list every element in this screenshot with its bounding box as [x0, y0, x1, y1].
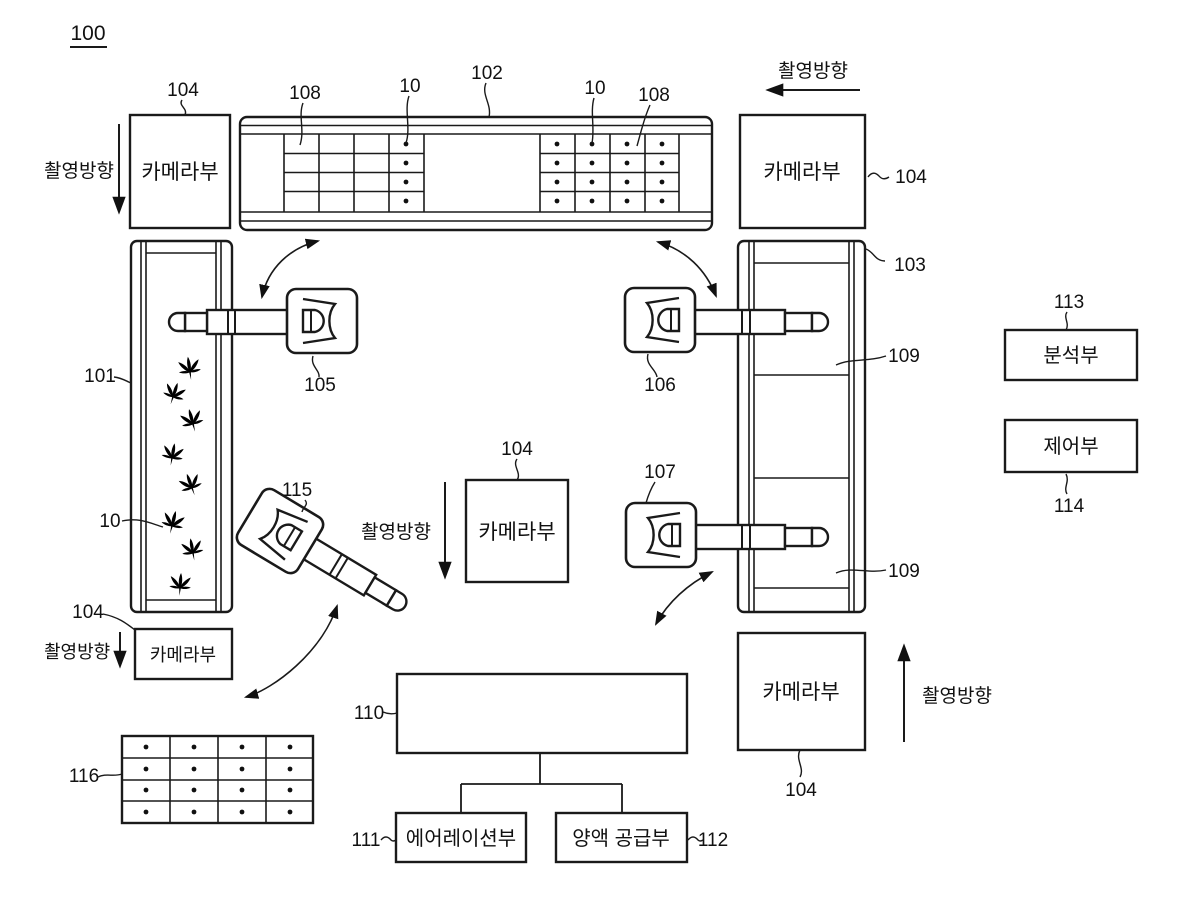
- nutrient-unit-label: 양액 공급부: [572, 827, 670, 850]
- tank-connector-lines: [461, 753, 622, 813]
- ref-115: 115: [282, 480, 312, 501]
- ref-116: 116: [69, 766, 99, 787]
- top-conveyor: 108 10 102 10 108: [240, 63, 712, 230]
- analysis-unit-label: 분석부: [1043, 344, 1098, 367]
- ref-106: 106: [644, 375, 676, 396]
- camera-unit-top-left-label: 카메라부: [141, 161, 218, 184]
- right-conveyor: 103 109 109: [738, 241, 926, 612]
- shoot-direction-center-label: 촬영방향: [361, 521, 431, 543]
- shoot-direction-top-left-label: 촬영방향: [44, 160, 114, 182]
- control-unit-label: 제어부: [1043, 435, 1098, 458]
- figure-number-label: 100: [70, 22, 105, 45]
- shoot-direction-bottom-left: 촬영방향: [44, 632, 120, 666]
- ref-108-left: 108: [289, 83, 321, 104]
- ref-110: 110: [354, 703, 384, 724]
- camera-unit-bottom-left: 카메라부 104: [72, 602, 232, 679]
- camera-unit-bottom-right: 카메라부 104: [738, 633, 865, 801]
- ref-111: 111: [352, 830, 381, 851]
- figure-number: 100: [70, 22, 107, 47]
- ref-104-top-left: 104: [167, 80, 199, 101]
- ref-113: 113: [1054, 292, 1084, 313]
- gripper-claw-icon: [625, 288, 695, 352]
- camera-unit-top-right-label: 카메라부: [763, 161, 840, 184]
- ref-109-bottom: 109: [888, 561, 920, 582]
- ref-107: 107: [644, 462, 676, 483]
- ref-104-center: 104: [501, 439, 533, 460]
- gripper-claw-icon: [287, 289, 357, 353]
- shoot-direction-bottom-right-label: 촬영방향: [922, 685, 992, 707]
- transfer-robot-115: 115: [234, 480, 422, 634]
- ref-104-bottom-right: 104: [785, 780, 817, 801]
- ref-105: 105: [304, 375, 336, 396]
- aeration-unit-box: 에어레이션부 111: [352, 813, 526, 862]
- patent-figure-page: 100 카메라부 104 촬영방향: [0, 0, 1203, 905]
- camera-unit-center: 카메라부 104: [466, 439, 568, 582]
- ref-10-top-right: 10: [584, 78, 605, 99]
- ref-109-top: 109: [888, 346, 920, 367]
- ref-104-top-right: 104: [895, 167, 927, 188]
- patent-figure: 100 카메라부 104 촬영방향: [0, 0, 1203, 905]
- output-tray-grid: 116: [69, 736, 313, 823]
- camera-unit-bottom-left-label: 카메라부: [150, 645, 216, 665]
- camera-unit-top-left: 카메라부 104: [130, 80, 230, 228]
- camera-unit-bottom-right-label: 카메라부: [762, 681, 839, 704]
- left-conveyor: 101 10: [84, 241, 232, 612]
- shoot-direction-bottom-left-label: 촬영방향: [44, 642, 110, 662]
- tank-block: 110 에어레이션부 111 양액 공급부 112: [352, 674, 729, 862]
- gripper-claw-icon: [626, 503, 696, 567]
- ref-102: 102: [471, 63, 503, 84]
- ref-101: 101: [84, 366, 116, 387]
- aeration-unit-label: 에어레이션부: [406, 827, 516, 850]
- analysis-unit-box: 분석부 113: [1005, 292, 1137, 380]
- shoot-direction-bottom-right: 촬영방향: [904, 646, 992, 742]
- ref-114: 114: [1054, 496, 1085, 517]
- ref-10-left: 10: [99, 511, 120, 532]
- nutrient-unit-box: 양액 공급부 112: [556, 813, 728, 862]
- shoot-direction-top-right: 촬영방향: [768, 60, 860, 90]
- ref-104-bottom-left: 104: [72, 602, 104, 623]
- camera-unit-center-label: 카메라부: [478, 521, 555, 544]
- control-unit-box: 제어부 114: [1005, 420, 1137, 517]
- swap-arrow-bottom-right: [656, 572, 712, 624]
- shoot-direction-top-right-label: 촬영방향: [778, 60, 848, 82]
- ref-108-right: 108: [638, 85, 670, 106]
- shoot-direction-top-left: 촬영방향: [44, 124, 119, 212]
- camera-unit-top-right: 카메라부 104: [740, 115, 927, 228]
- ref-103: 103: [894, 255, 926, 276]
- ref-10-top-left: 10: [399, 76, 420, 97]
- shoot-direction-center: 촬영방향: [361, 482, 445, 577]
- swap-arrow-center: [246, 606, 337, 697]
